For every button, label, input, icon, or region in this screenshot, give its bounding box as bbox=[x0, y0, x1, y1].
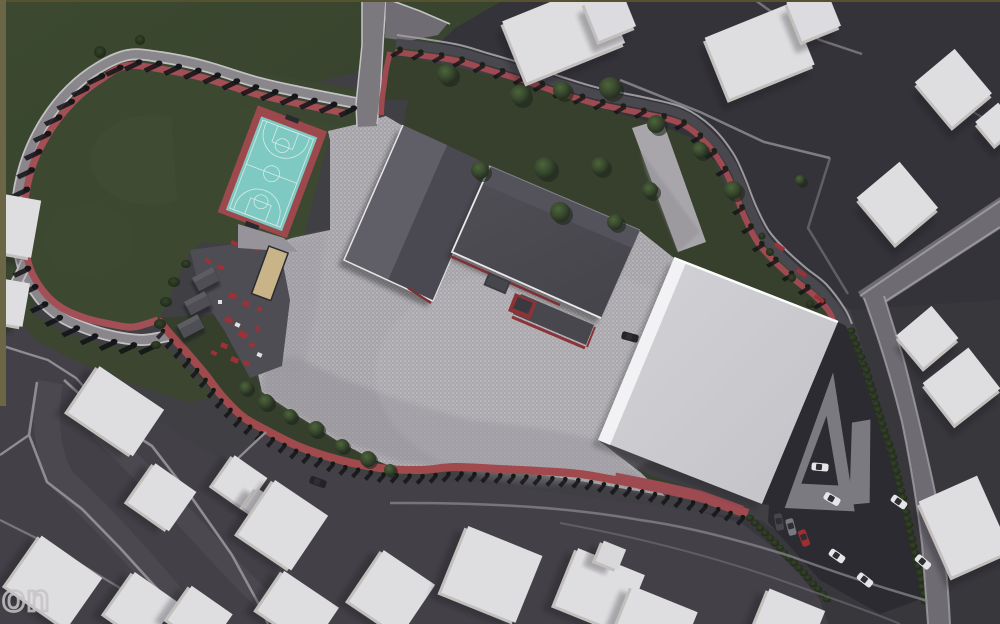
svg-text:on: on bbox=[2, 578, 50, 620]
